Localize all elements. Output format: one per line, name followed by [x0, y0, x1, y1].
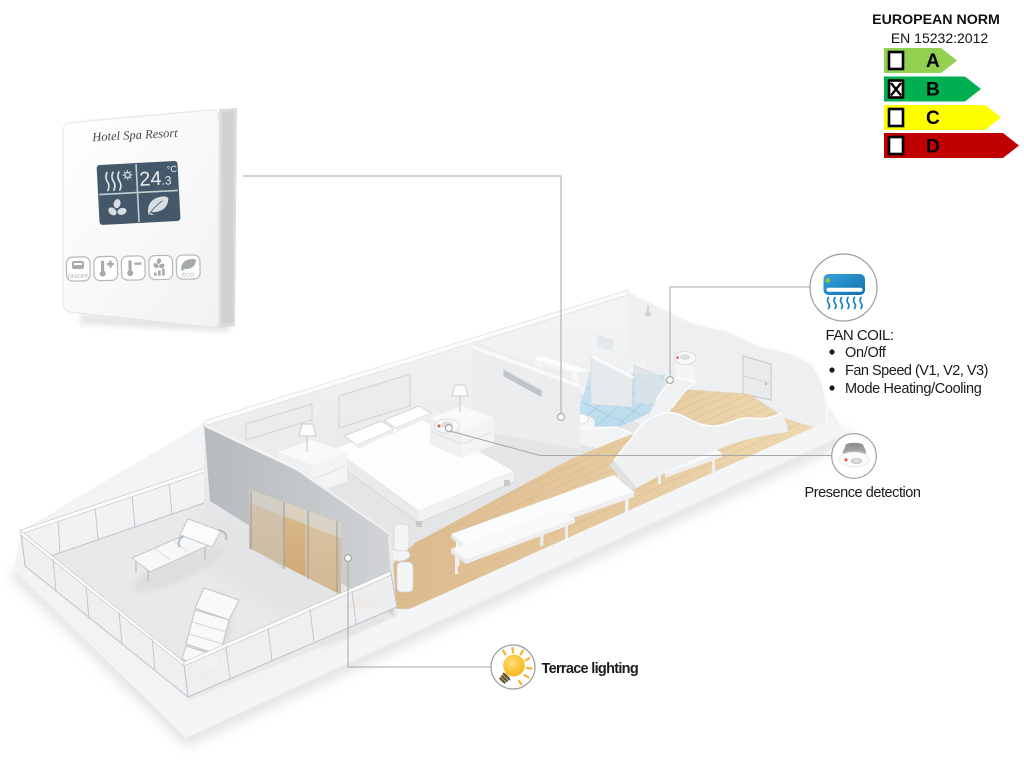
svg-text:B: B — [926, 80, 940, 101]
svg-text:A: A — [926, 51, 940, 72]
svg-text:ON/OFF: ON/OFF — [68, 274, 90, 280]
svg-text:Terrace lighting: Terrace lighting — [542, 661, 639, 677]
svg-text:Mode Heating/Cooling: Mode Heating/Cooling — [845, 381, 982, 397]
svg-text:ECO: ECO — [182, 272, 195, 278]
svg-text:FAN COIL:: FAN COIL: — [826, 327, 894, 344]
svg-text:D: D — [926, 137, 940, 158]
svg-text:24: 24 — [139, 168, 162, 191]
svg-text:EN 15232:2012: EN 15232:2012 — [891, 30, 989, 46]
svg-text:.3: .3 — [161, 173, 172, 188]
svg-text:°C: °C — [167, 164, 178, 175]
svg-text:Fan Speed (V1, V2, V3): Fan Speed (V1, V2, V3) — [845, 363, 988, 379]
svg-text:EUROPEAN NORM: EUROPEAN NORM — [872, 12, 1000, 28]
svg-text:C: C — [926, 108, 940, 129]
svg-text:Presence detection: Presence detection — [805, 485, 921, 501]
svg-text:On/Off: On/Off — [845, 345, 887, 361]
